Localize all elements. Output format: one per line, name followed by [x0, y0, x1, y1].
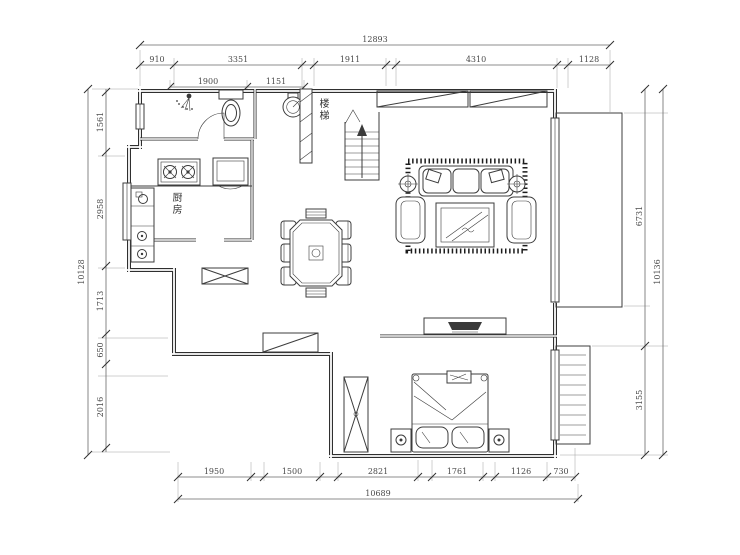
dim-bottom-seg-3: 2821: [368, 467, 388, 476]
dining-end-setting-top: [306, 209, 326, 218]
shower-head: [176, 94, 193, 111]
bathroom: [176, 89, 312, 163]
tv-cabinet: [424, 318, 506, 334]
toilet: [219, 90, 243, 126]
dim-left-seg-2: 2958: [96, 199, 105, 219]
nightstand-right: [489, 429, 509, 452]
kitchen-cooktop: [158, 159, 200, 185]
floor-lamp-left: [398, 174, 418, 194]
kitchen-side-counter: [131, 188, 154, 262]
dim-bottom-seg-6: 730: [553, 467, 568, 476]
window-entry-wall: [136, 104, 144, 129]
dim-bottom-overall: 10689: [365, 489, 390, 498]
extension-lines: [92, 50, 668, 502]
nightstand-left: [391, 429, 411, 452]
kitchen-sink-unit: [213, 158, 248, 189]
dining-end-setting-bottom: [306, 288, 326, 297]
wardrobe: [344, 377, 368, 452]
dim-left-overall: 10128: [77, 259, 86, 284]
duct-shaft: [300, 89, 312, 163]
sofa-back: [419, 166, 513, 196]
bedroom: [344, 371, 509, 452]
window-kitchen: [123, 183, 131, 240]
bed: [412, 371, 488, 452]
dim-top-seg-2: 3351: [228, 55, 248, 64]
dim-left-seg-1: 1561: [96, 112, 105, 132]
dim-top-inner-1: 1900: [198, 77, 218, 86]
lintel-living-left: [377, 91, 468, 107]
hall-cabinet: [263, 333, 318, 352]
dim-top-seg-1: 910: [149, 55, 164, 64]
dim-top-seg-3: 1911: [340, 55, 360, 64]
floor-plan-canvas: 12893 910 3351 1911 4310 1128 1900 1151 …: [0, 0, 740, 555]
dim-left-seg-4: 650: [96, 342, 105, 357]
dim-bottom-seg-5: 1126: [511, 467, 531, 476]
coffee-table: [436, 203, 494, 247]
dining-table: [290, 220, 342, 286]
kitchen: [131, 158, 252, 284]
room-label-stairs: 楼梯: [317, 98, 327, 122]
dimension-labels: 12893 910 3351 1911 4310 1128 1900 1151 …: [77, 35, 662, 498]
dim-left-seg-5: 2016: [96, 397, 105, 417]
armchair-left: [396, 197, 425, 243]
bay-window-living: [551, 113, 622, 307]
bathroom-door-arc: [198, 113, 224, 139]
tv: [448, 322, 482, 330]
utility-cabinet: [202, 268, 248, 284]
dim-bottom-seg-4: 1761: [447, 467, 467, 476]
room-label-kitchen: 厨房: [170, 192, 180, 216]
pillow-right: [452, 427, 484, 448]
dim-right-overall: 10136: [653, 259, 662, 284]
dim-top-seg-4: 4310: [466, 55, 486, 64]
armchair-right: [507, 197, 536, 243]
dining-set: [281, 209, 351, 297]
dim-bottom-seg-2: 1500: [282, 467, 302, 476]
dim-top-seg-5: 1128: [579, 55, 599, 64]
dim-top-inner-2: 1151: [266, 77, 286, 86]
bay-window-bedroom: [551, 346, 590, 444]
stairs: [345, 110, 379, 180]
dim-right-seg-2: 3155: [635, 390, 644, 410]
dim-right-seg-1: 6731: [635, 206, 644, 226]
lintel-living-right: [470, 91, 547, 107]
pillow-left: [416, 427, 448, 448]
dim-bottom-seg-1: 1950: [204, 467, 224, 476]
floor-plan-svg: 12893 910 3351 1911 4310 1128 1900 1151 …: [0, 0, 740, 555]
dim-top-overall: 12893: [362, 35, 387, 44]
living-room: [396, 161, 536, 334]
windows: [123, 91, 622, 444]
dim-left-seg-3: 1713: [96, 291, 105, 311]
